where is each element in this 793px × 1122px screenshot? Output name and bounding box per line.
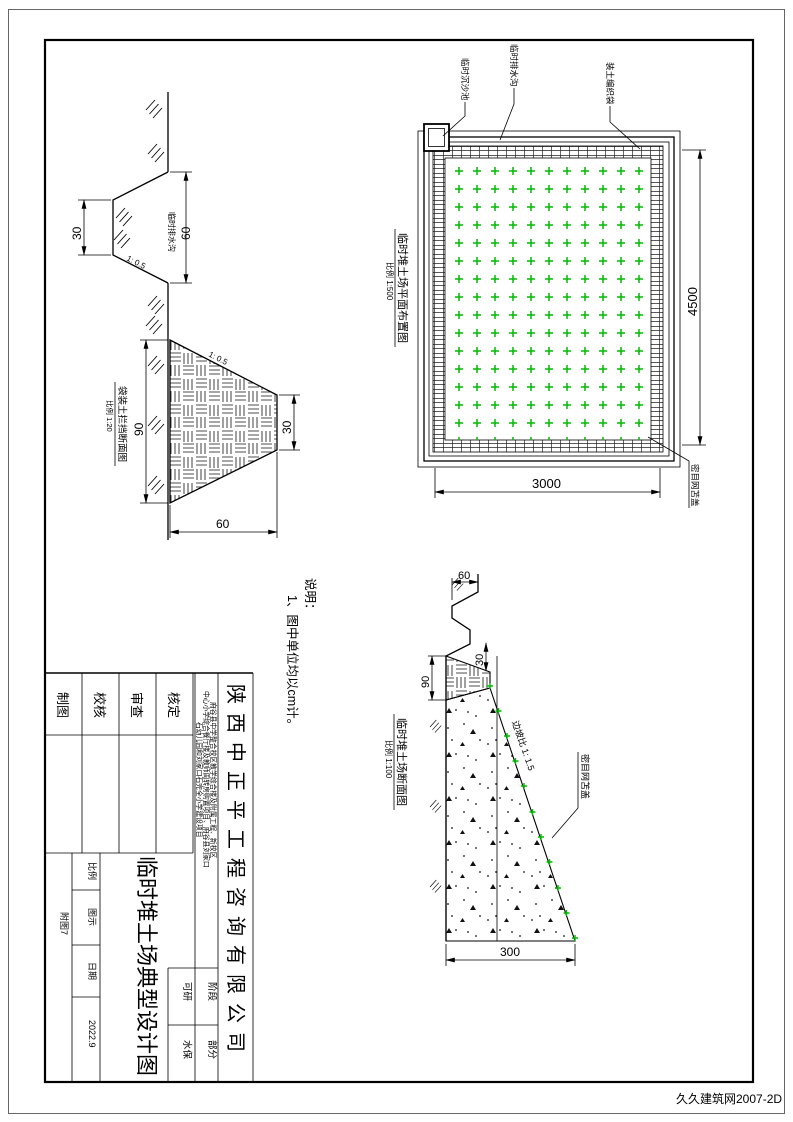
part-value: 部分 (206, 1040, 218, 1060)
sign-row-shencha: 审查 (129, 692, 144, 718)
barrier-title: 袋装土拦挡断面图 (116, 386, 128, 462)
part-label: 水保 (181, 1040, 193, 1060)
ditch-dim-60: 60 (179, 226, 193, 240)
section-label-net: 密目网苫盖 (580, 754, 591, 799)
notes-heading: 说明： (303, 578, 318, 616)
stage-value: 阶段 (206, 982, 218, 1002)
barrier-dim-30: 30 (280, 420, 294, 434)
barrier-dim-90: 90 (132, 422, 146, 436)
scale-value: 图示 (87, 908, 97, 926)
sediment-pool-symbol (424, 124, 449, 151)
project-line-1: 府谷县中学整合校区教学综合楼及附属工程、新校区 (209, 702, 218, 859)
section-dim-90: 90 (420, 676, 432, 688)
stage-label: 可研 (181, 982, 192, 1002)
sign-row-zhitu: 制图 (55, 692, 70, 718)
drawing-sheet: 临时沉沙池 临时排水沟 装土编织袋 密目网苫盖 4500 3000 临时堆土场平… (0, 0, 793, 1122)
drawing-title: 临时堆土场典型设计图 (134, 856, 159, 1076)
project-line-2: 中心小学综合餐厅楼及教师周转房购置项目、府谷县刘家口 (202, 691, 211, 868)
plan-dim-3000: 3000 (532, 476, 561, 491)
ditch-label: 临时排水沟 (167, 212, 177, 252)
watermark-text: 久久建筑网2007-2D (676, 1091, 782, 1106)
plan-dim-4500: 4500 (685, 287, 700, 316)
plan-label-net: 密目网苫盖 (690, 464, 700, 507)
section-dim-30: 30 (474, 654, 486, 666)
plan-net-cover-area (445, 158, 651, 440)
section-dim-300: 300 (500, 945, 520, 959)
plan-scale: 比例 1:500 (385, 262, 395, 301)
plan-label-bags: 装土编织袋 (605, 62, 615, 105)
barrier-dim-60: 60 (216, 517, 230, 531)
sheet-borders (9, 10, 785, 1114)
sign-row-heding: 核定 (166, 692, 181, 718)
sign-row-jiaohe: 校核 (92, 692, 107, 718)
scale-label: 比例 (87, 862, 98, 880)
ditch-dim-30: 30 (70, 226, 84, 240)
section-dim-60: 60 (458, 570, 470, 582)
project-line-3: 石幼儿园和刘家口石完全小学建设项目 (195, 722, 204, 838)
plan-label-pool: 临时沉沙池 (460, 58, 470, 101)
plan-title: 临时堆土场平面布置图 (396, 233, 410, 343)
plan-label-ditch: 临时排水沟 (509, 44, 519, 87)
section-scale: 比例 1:100 (384, 740, 394, 779)
barrier-scale: 比例 1:20 (105, 400, 115, 432)
company-name: 陕西中正平工程咨询有限公司 (224, 684, 247, 1061)
date-value: 2022.9 (87, 1020, 97, 1048)
notes-line1: 1、图中单位均以cm计。 (285, 595, 300, 731)
figure-number: 附图7 (59, 912, 70, 935)
section-title: 临时堆土场断面图 (395, 718, 409, 806)
date-label: 日期 (87, 962, 97, 980)
